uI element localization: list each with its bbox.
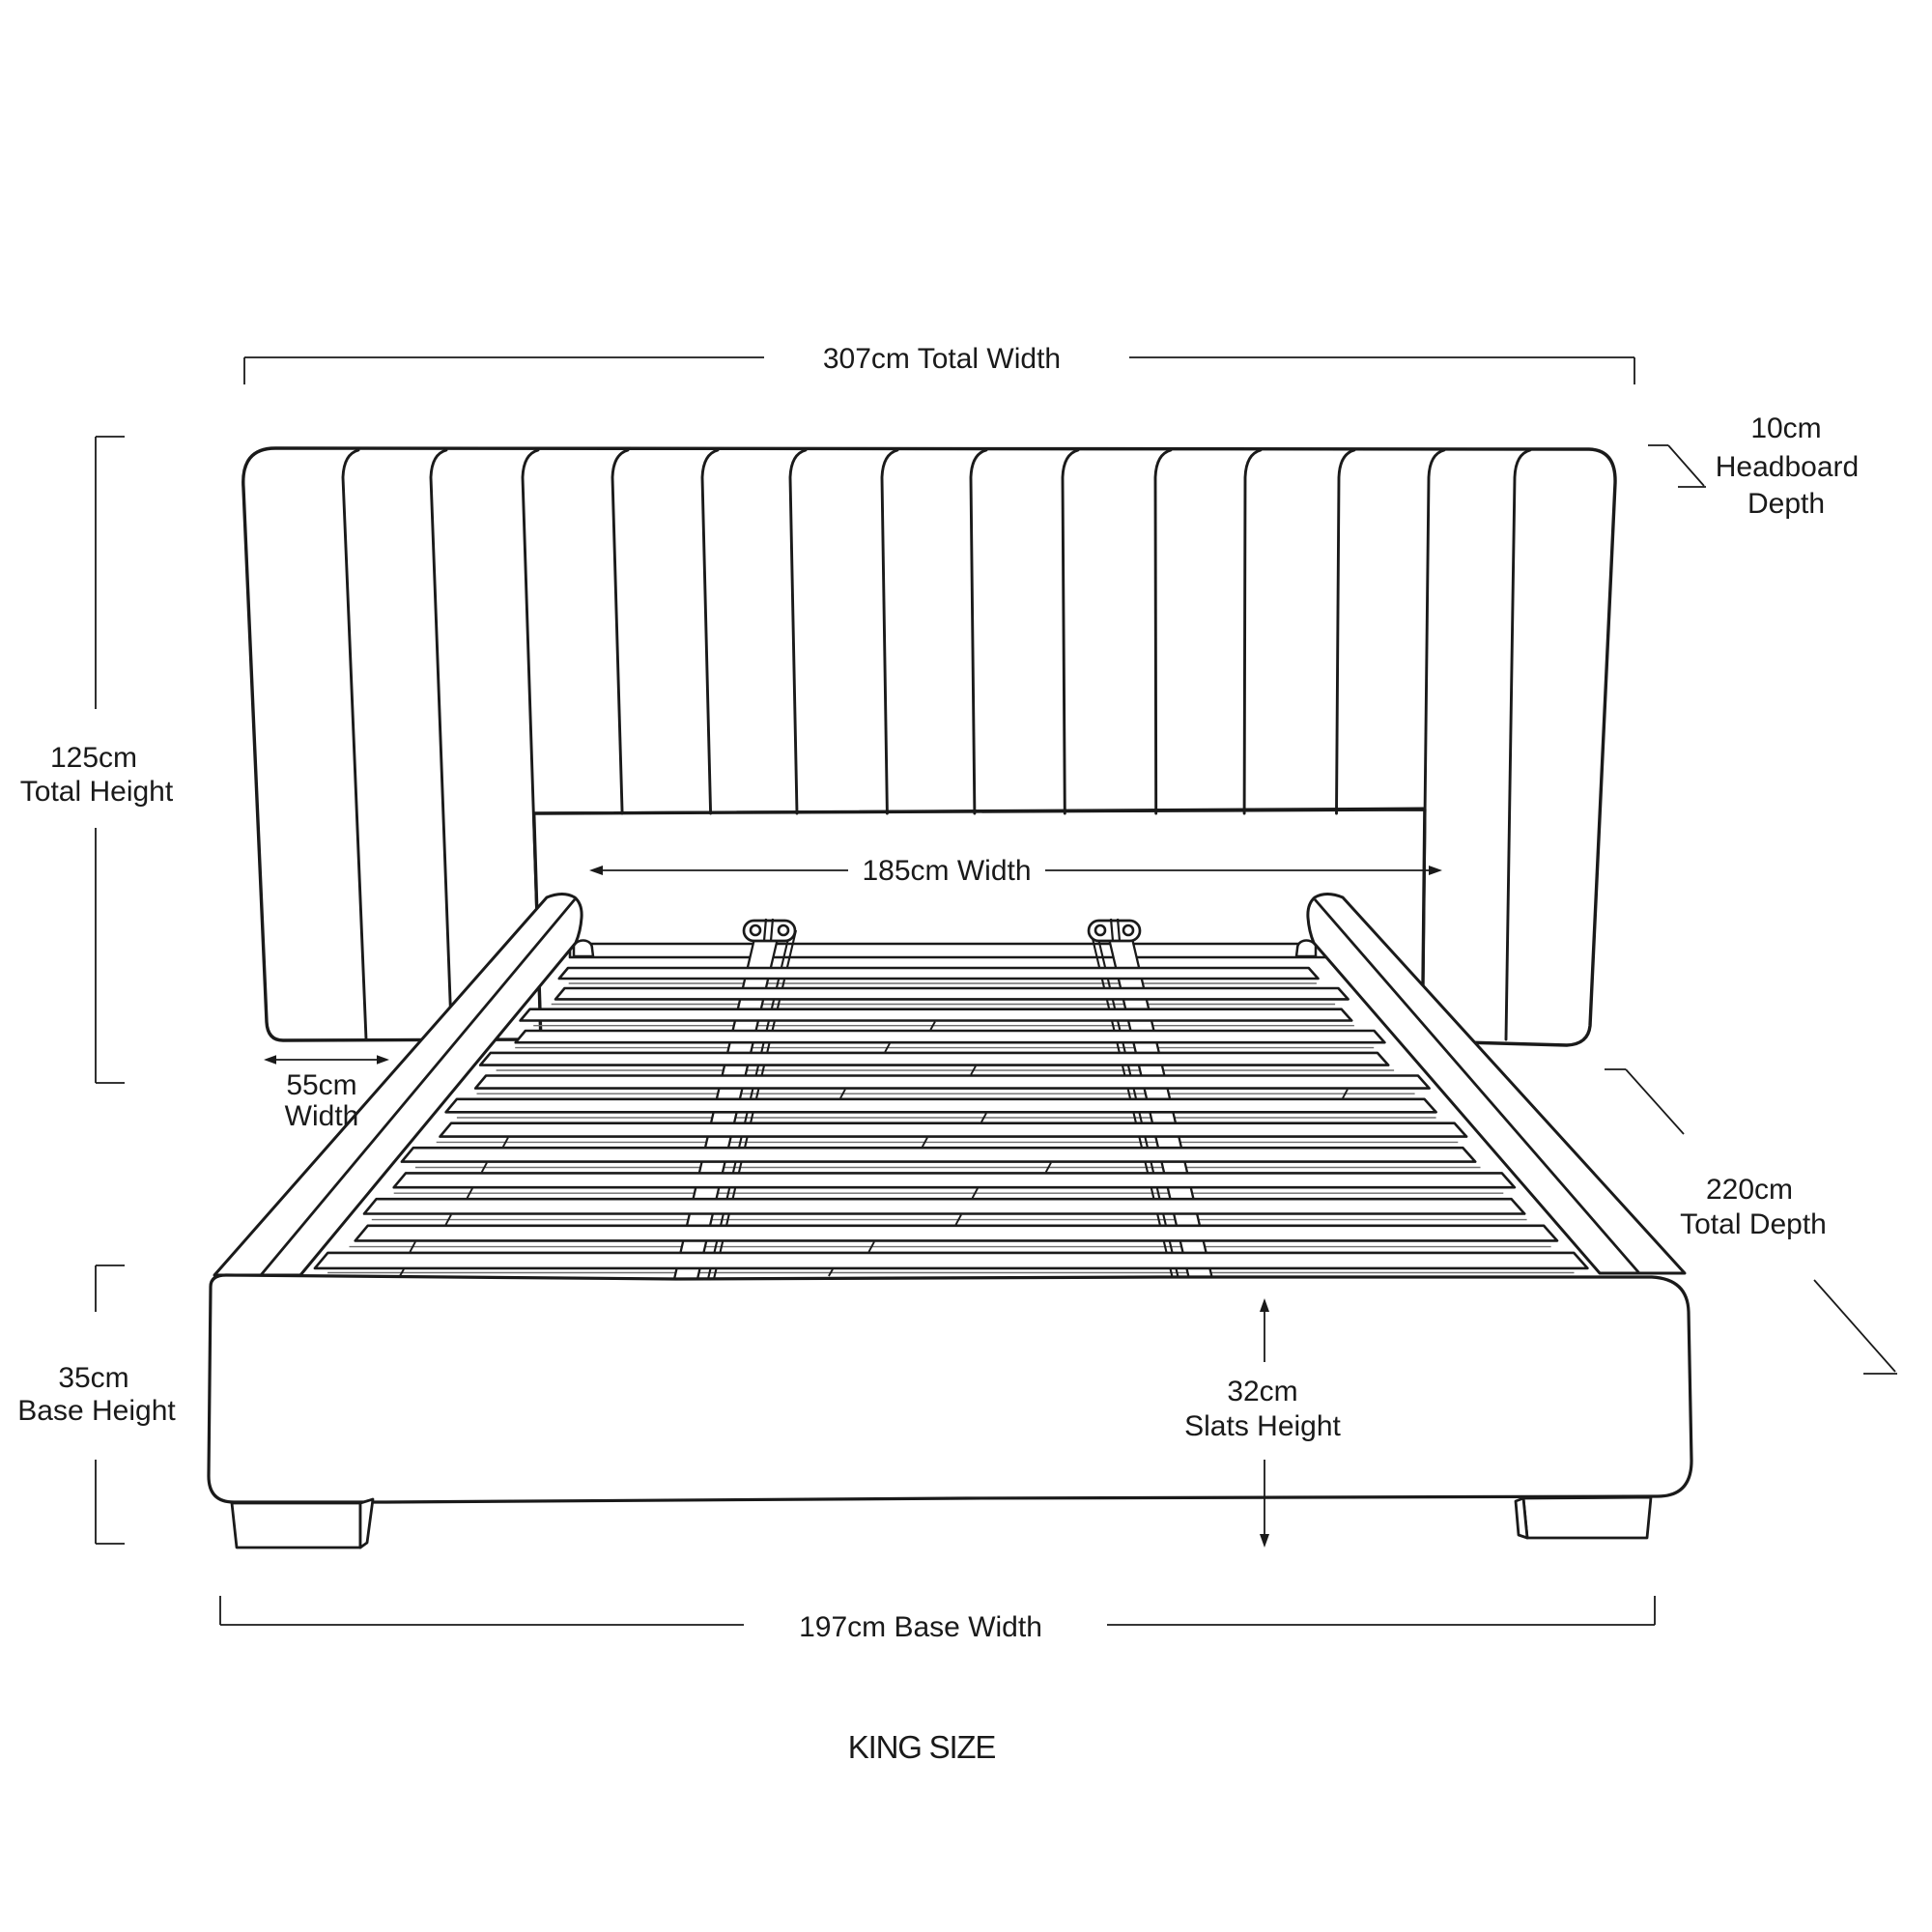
svg-text:10cm: 10cm <box>1750 412 1821 444</box>
svg-text:35cm: 35cm <box>58 1362 128 1394</box>
svg-text:185cm Width: 185cm Width <box>862 855 1031 887</box>
svg-text:Depth: Depth <box>1747 488 1825 520</box>
svg-text:Total Depth: Total Depth <box>1680 1208 1827 1240</box>
svg-text:Headboard: Headboard <box>1716 451 1859 483</box>
svg-text:Slats Height: Slats Height <box>1184 1410 1341 1442</box>
svg-text:55cm: 55cm <box>286 1069 356 1101</box>
svg-text:Total Height: Total Height <box>20 776 174 808</box>
svg-text:220cm: 220cm <box>1706 1174 1793 1206</box>
svg-text:307cm Total Width: 307cm Total Width <box>823 343 1061 375</box>
svg-text:Base Height: Base Height <box>17 1395 176 1427</box>
svg-text:125cm: 125cm <box>50 742 137 774</box>
svg-text:197cm Base Width: 197cm Base Width <box>799 1611 1042 1643</box>
svg-text:KING SIZE: KING SIZE <box>848 1729 996 1765</box>
svg-text:Width: Width <box>285 1100 359 1132</box>
svg-text:32cm: 32cm <box>1227 1376 1297 1407</box>
